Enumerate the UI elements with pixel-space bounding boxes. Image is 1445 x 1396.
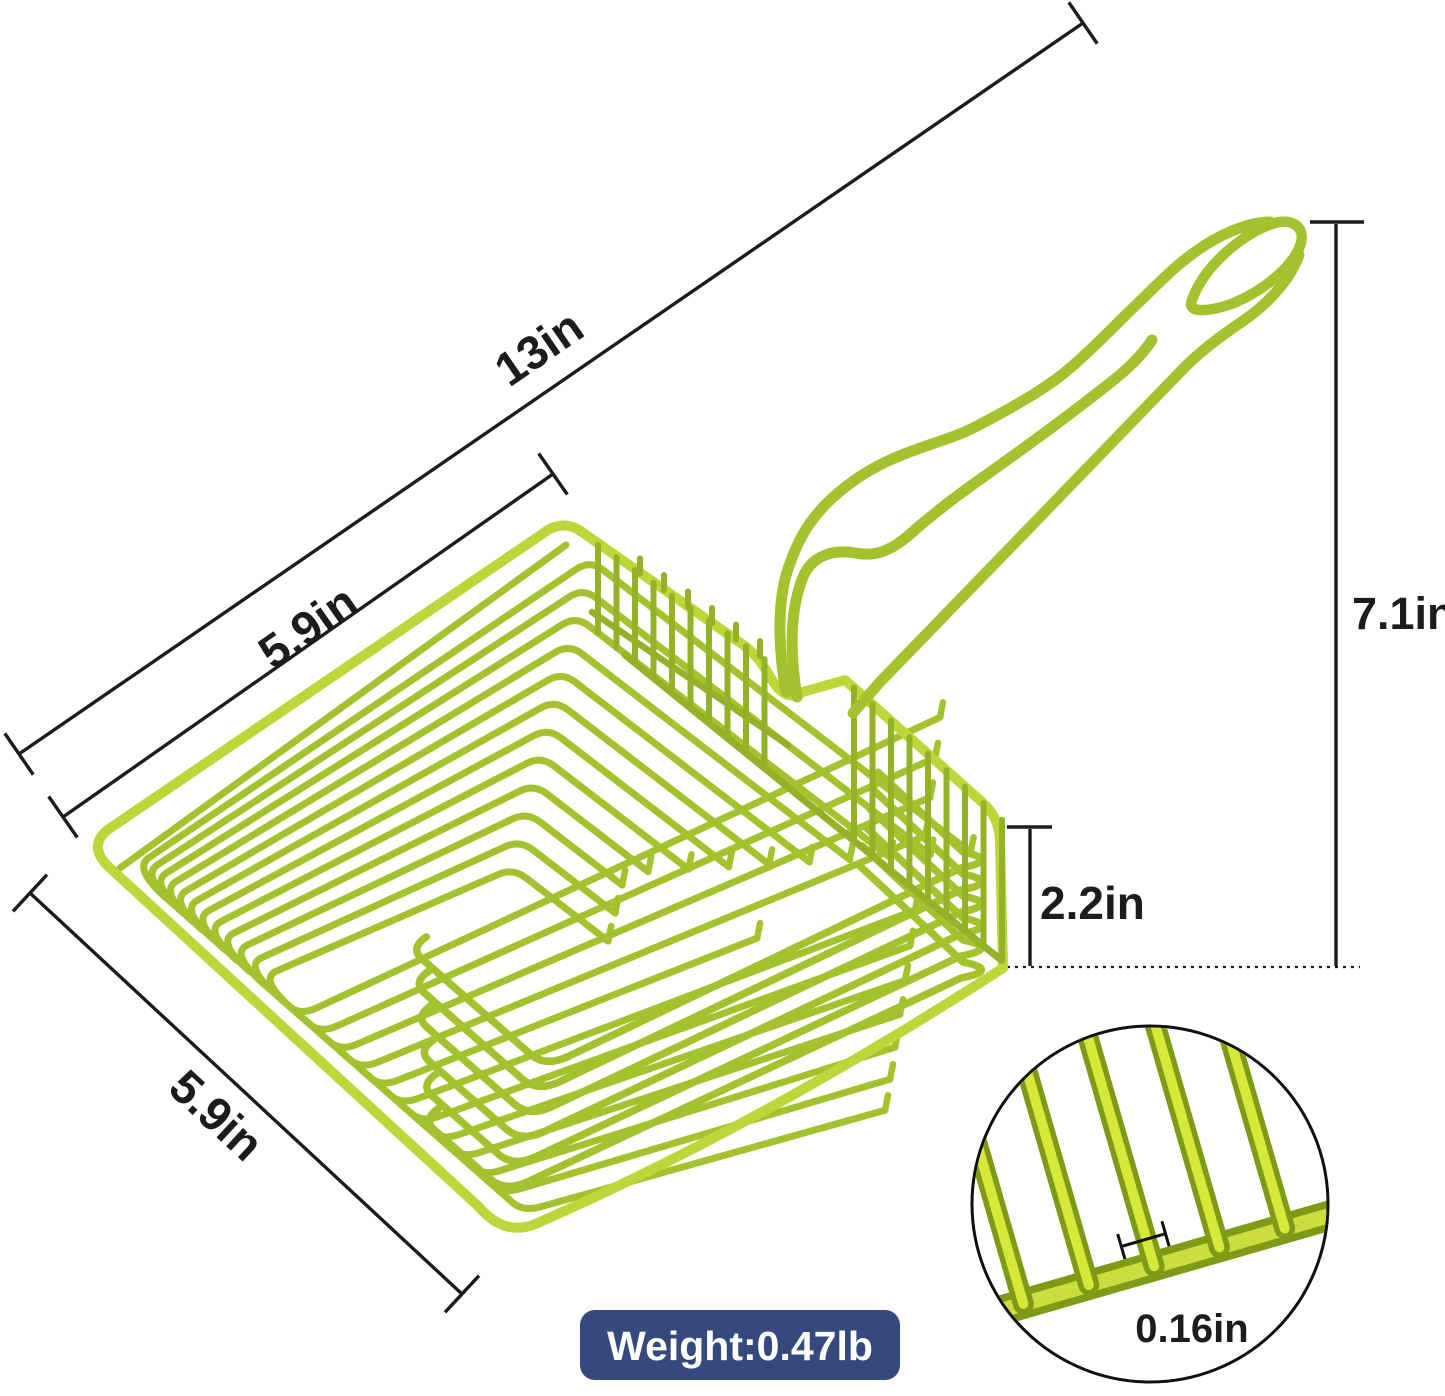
svg-text:0.16in: 0.16in [1135, 1307, 1248, 1351]
svg-text:Weight:0.47lb: Weight:0.47lb [607, 1323, 873, 1369]
svg-text:2.2in: 2.2in [1040, 877, 1145, 929]
svg-text:13in: 13in [485, 299, 593, 396]
svg-text:7.1in: 7.1in [1352, 588, 1445, 639]
svg-text:5.9in: 5.9in [160, 1059, 275, 1171]
